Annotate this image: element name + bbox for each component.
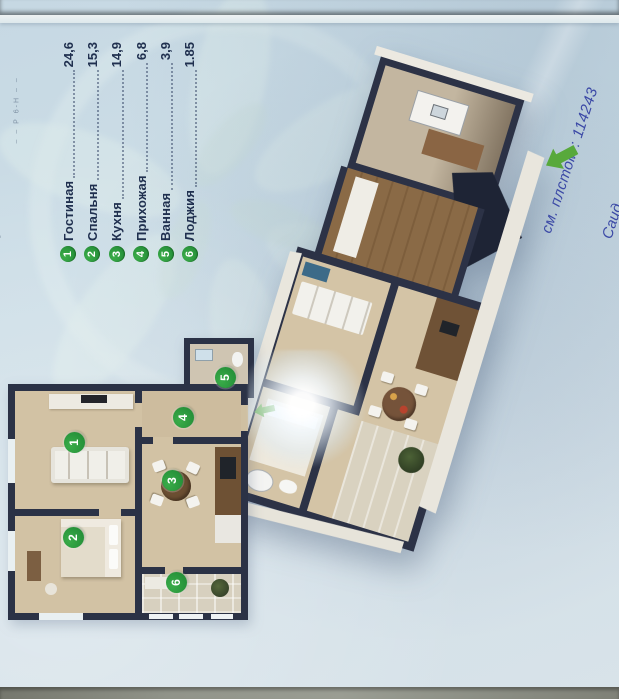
legend-row-living: 1 Гостиная 24,6 [58, 42, 78, 262]
door-opening [99, 509, 121, 516]
sofa [292, 281, 373, 335]
sofa [51, 447, 129, 483]
pillows [267, 403, 318, 429]
room-legend: 1 Гостиная 24,6 2 Спальня 15,3 3 Кухня 1… [58, 42, 200, 262]
legend-row-loggia: 6 Лоджия 1.85 [180, 42, 200, 262]
legend-number-badge: 3 [109, 246, 125, 262]
legend-number-badge: 6 [182, 246, 198, 262]
sink [195, 349, 213, 361]
door-opening [135, 403, 142, 427]
plant [211, 579, 229, 597]
dotted-leader [159, 63, 173, 190]
loggia-window-pane [179, 614, 203, 619]
floorplan-2d: 1 2 3 4 5 6 [8, 338, 254, 628]
room-marker-bathroom: 5 [215, 367, 236, 388]
tv-panel [81, 395, 107, 403]
room-marker-kitchen: 3 [162, 470, 183, 491]
surface-below-paper [0, 687, 619, 699]
legend-room-area: 1.85 [182, 42, 197, 67]
pillow [109, 549, 118, 569]
legend-row-bathroom: 5 Ванная 3,9 [156, 42, 176, 262]
legend-room-label: Лоджия [182, 190, 197, 241]
loggia-window-pane [211, 614, 233, 619]
legend-number-badge: 5 [158, 246, 174, 262]
room-marker-loggia: 6 [166, 572, 187, 593]
legend-number-badge: 4 [133, 246, 149, 262]
chair [186, 495, 201, 509]
paper-edge-marks-2: + в [0, 235, 2, 245]
fridge [215, 515, 241, 543]
legend-row-kitchen: 3 Кухня 14,9 [107, 42, 127, 262]
window [8, 439, 15, 483]
window [39, 613, 83, 620]
room-marker-living: 1 [64, 432, 85, 453]
legend-room-label: Спальня [85, 183, 100, 241]
legend-number-badge: 2 [84, 246, 100, 262]
cooktop [439, 320, 460, 337]
chair [150, 493, 165, 507]
legend-room-area: 24,6 [61, 42, 76, 67]
legend-room-area: 14,9 [109, 42, 124, 67]
chair [403, 418, 417, 431]
legend-room-area: 6,8 [134, 42, 149, 60]
chair [414, 383, 428, 396]
legend-number-badge: 1 [60, 246, 76, 262]
legend-row-hallway: 4 Прихожая 6,8 [131, 42, 151, 262]
legend-room-area: 15,3 [85, 42, 100, 67]
floorplan-flyer-photo: 1 Гостиная 24,6 2 Спальня 15,3 3 Кухня 1… [0, 0, 619, 699]
legend-room-label: Гостиная [61, 181, 76, 241]
entrance-door-opening [241, 405, 248, 431]
loggia-3d [332, 421, 438, 542]
dotted-leader [61, 70, 75, 177]
loggia-window-pane [149, 614, 173, 619]
chair [380, 371, 394, 384]
legend-room-area: 3,9 [158, 42, 173, 60]
dotted-leader [110, 70, 124, 199]
chair [185, 461, 200, 475]
room-marker-bedroom: 2 [63, 527, 84, 548]
tv-panel [302, 261, 331, 282]
room-marker-hallway: 4 [173, 407, 194, 428]
toilet [278, 478, 299, 496]
toilet [232, 352, 243, 367]
legend-room-label: Кухня [109, 202, 124, 241]
dotted-leader [85, 70, 99, 180]
handwritten-note-partial: Саид [599, 112, 619, 241]
kitchen-counter [215, 447, 241, 515]
pouf [45, 583, 57, 595]
legend-room-label: Прихожая [134, 175, 149, 241]
pillow [109, 525, 118, 545]
paper-edge-marks: – – Р 6-Н – – [14, 54, 21, 144]
chair [152, 459, 167, 473]
paper-top-edge [0, 15, 619, 23]
door-opening [153, 437, 173, 444]
dresser [27, 551, 41, 581]
window [8, 531, 15, 571]
apartment-body-2d [8, 384, 248, 620]
chair [368, 405, 382, 418]
legend-room-label: Ванная [158, 193, 173, 241]
legend-row-bedroom: 2 Спальня 15,3 [82, 42, 102, 262]
wardrobe [333, 176, 379, 258]
dotted-leader [134, 63, 148, 172]
wooden-table-edge [0, 0, 619, 15]
cooktop [220, 457, 236, 479]
dotted-leader [183, 70, 197, 187]
